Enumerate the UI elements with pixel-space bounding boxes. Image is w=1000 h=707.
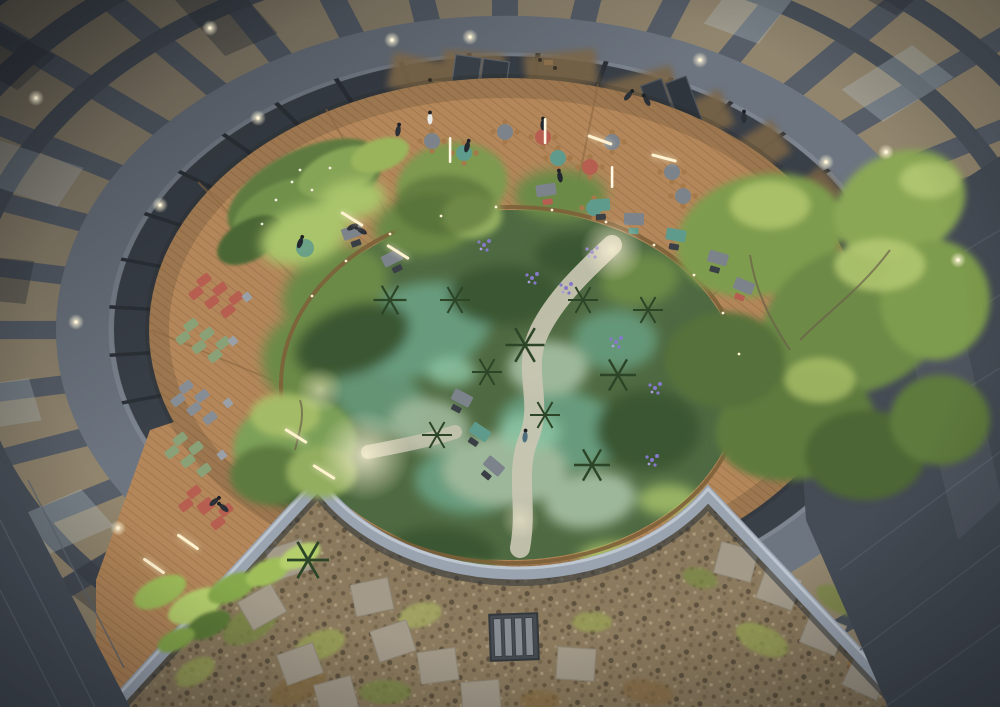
vignette-overlay <box>0 0 1000 707</box>
rendering-canvas: Aerial dusk rendering of a circular offi… <box>0 0 1000 707</box>
